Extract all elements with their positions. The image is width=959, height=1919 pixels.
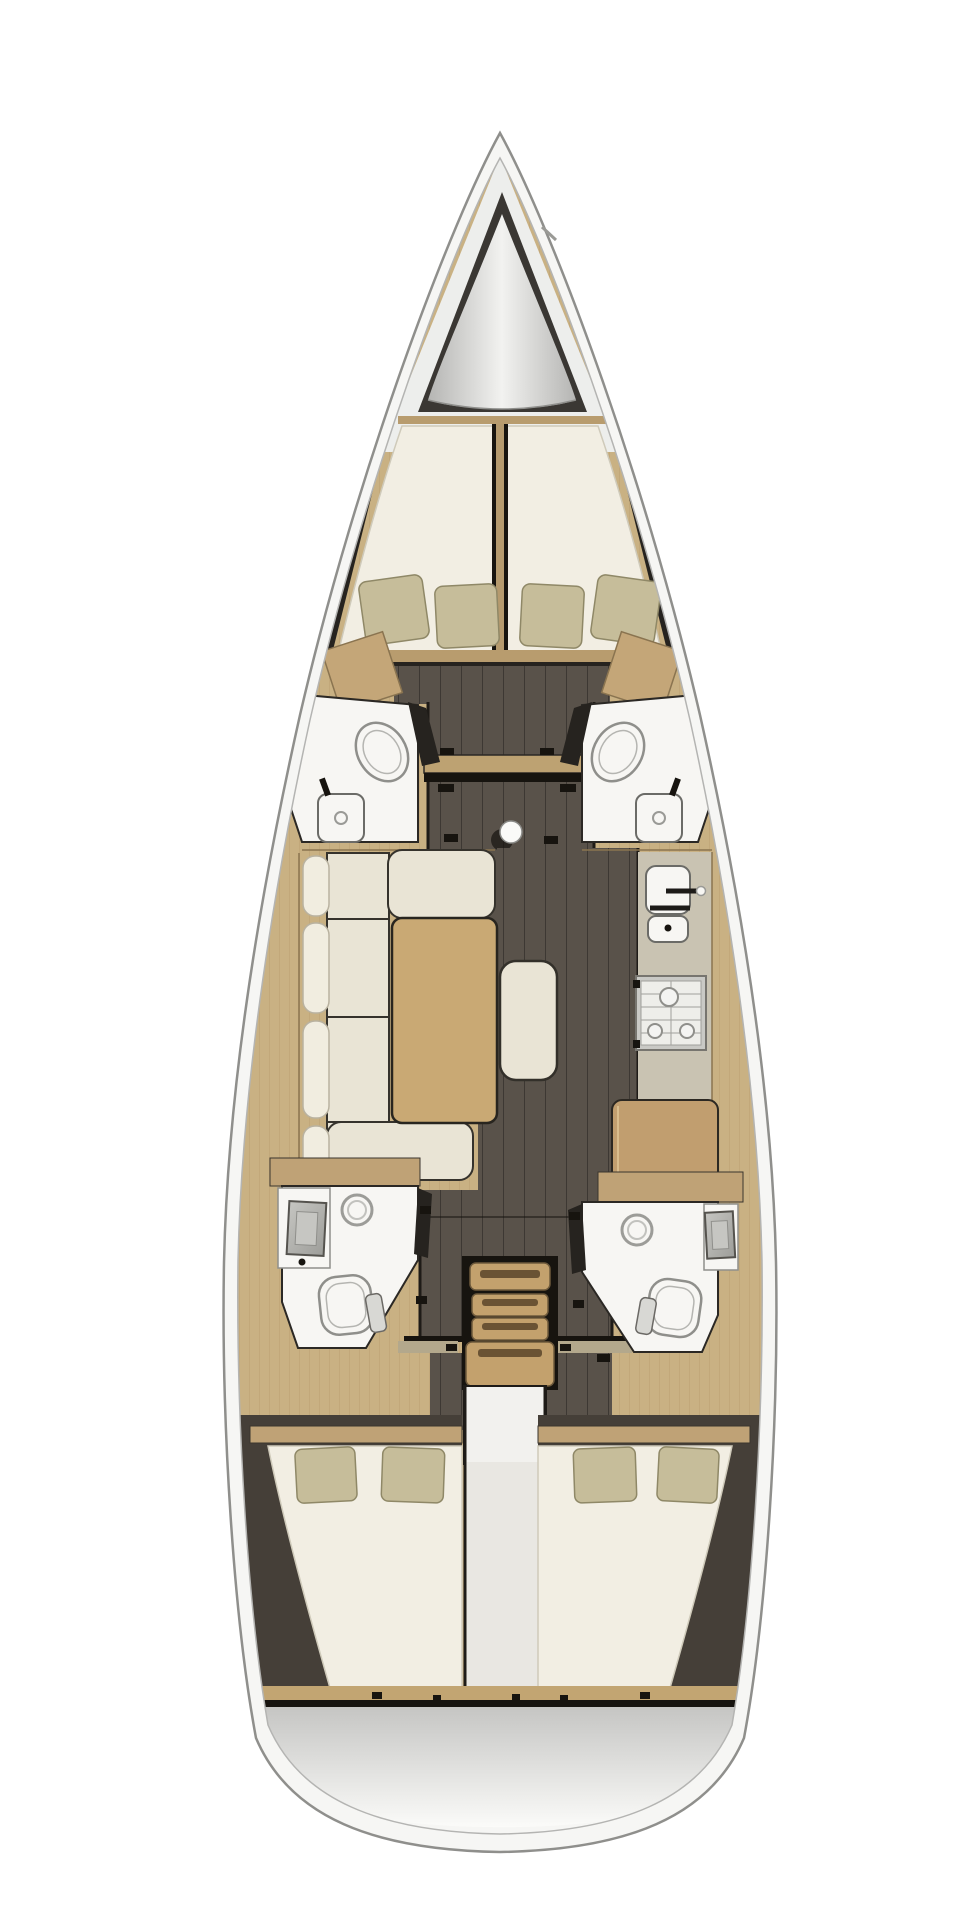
latch-mark — [560, 1344, 571, 1351]
companionway-stairs — [462, 1256, 558, 1390]
head-forward-wall — [270, 1158, 420, 1186]
mast — [500, 821, 522, 843]
latch-mark — [446, 1344, 457, 1351]
galley-stove — [633, 976, 706, 1050]
bed-head-frame — [538, 1426, 750, 1443]
stern-bulkhead-line — [262, 1700, 738, 1707]
v-berth-head-sill — [398, 416, 606, 424]
latch-mark — [544, 836, 558, 844]
hinge-mark — [420, 1206, 431, 1214]
hinge-mark — [573, 1300, 584, 1308]
engine-cover-panel — [464, 1386, 546, 1464]
hinge-mark — [416, 1296, 427, 1304]
pillow — [519, 583, 584, 648]
anchor-locker — [380, 156, 620, 452]
beam-shadow — [424, 773, 596, 782]
bed-head-frame — [250, 1426, 462, 1443]
stove-burner — [680, 1024, 694, 1038]
stove-gimbal — [633, 980, 640, 988]
hinge-mark — [569, 1212, 580, 1220]
sill-mark — [512, 1694, 520, 1700]
stove-burner — [648, 1024, 662, 1038]
latch-mark — [444, 834, 458, 842]
tread-grip — [478, 1349, 542, 1357]
pillow — [657, 1446, 720, 1503]
sink-drain-dot — [665, 925, 672, 932]
engine-strip — [466, 1462, 544, 1698]
port-aft-cabin — [228, 1415, 462, 1700]
pillow — [358, 574, 430, 646]
shower-drain — [622, 1215, 652, 1245]
washbasin-inner — [295, 1211, 318, 1245]
faucet-knob — [697, 887, 706, 896]
latch-mark — [597, 1354, 610, 1362]
washbasin — [318, 794, 364, 842]
starboard-aft-cabin — [538, 1415, 772, 1700]
washbasin-inner — [711, 1221, 728, 1250]
saloon-table — [392, 918, 497, 1123]
drain-dot — [299, 1259, 306, 1266]
pillow — [381, 1447, 445, 1503]
pillow — [573, 1447, 637, 1503]
shower-drain — [342, 1195, 372, 1225]
stove-burner — [660, 988, 678, 1006]
tread-grip — [482, 1299, 538, 1306]
latch-mark — [540, 748, 554, 755]
engine-compartment — [464, 1386, 546, 1698]
tread-grip — [480, 1270, 540, 1278]
sofa-bolster — [303, 856, 329, 916]
latch-mark — [560, 784, 576, 792]
stern-sill — [262, 1686, 738, 1702]
ottoman-bench — [500, 961, 557, 1080]
sofa-bolster — [303, 1021, 329, 1118]
pillow — [295, 1446, 358, 1503]
tread-grip — [482, 1323, 538, 1330]
stair-tread — [466, 1342, 554, 1386]
washbasin — [636, 794, 682, 842]
sill-mark — [372, 1692, 382, 1699]
pillow — [434, 583, 499, 648]
head-forward-wall — [598, 1172, 743, 1202]
sofa-cushion-forward — [388, 850, 495, 918]
latch-mark — [440, 748, 454, 755]
stove-gimbal — [633, 1040, 640, 1048]
sill-mark — [640, 1692, 650, 1699]
latch-mark — [438, 784, 454, 792]
sofa-bolster — [303, 923, 329, 1013]
yacht-floor-plan — [0, 0, 959, 1919]
forward-floor — [394, 666, 610, 704]
